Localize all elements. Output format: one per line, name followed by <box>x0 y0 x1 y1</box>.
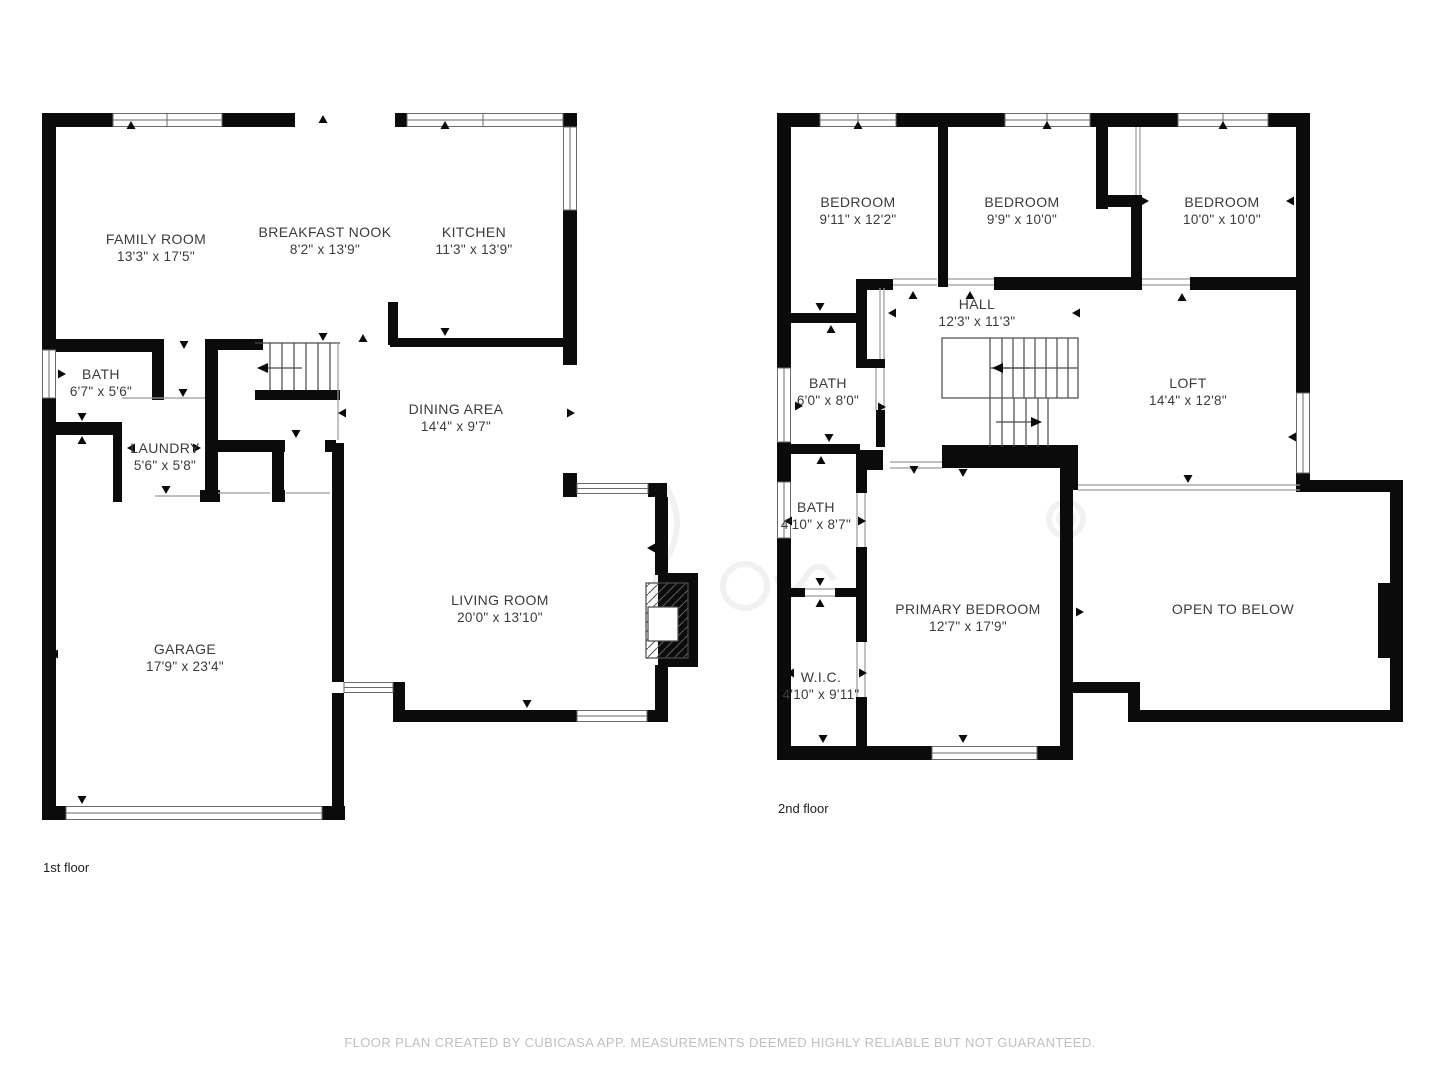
room-label-dining-area: DINING AREA <box>409 401 504 417</box>
floorplan-canvas: FAMILY ROOM 13'3" x 17'5" BREAKFAST NOOK… <box>0 0 1440 1080</box>
watermark <box>655 482 1083 620</box>
floor2-label: 2nd floor <box>778 801 829 816</box>
floorplan-page: FAMILY ROOM 13'3" x 17'5" BREAKFAST NOOK… <box>0 0 1440 1080</box>
room-dims-wic: 4'10" x 9'11" <box>783 687 860 702</box>
room-label-bedroom-1: BEDROOM <box>820 194 895 210</box>
floor2-stairs <box>942 338 1078 447</box>
room-label-bedroom-3: BEDROOM <box>1184 194 1259 210</box>
room-dims-breakfast-nook: 8'2" x 13'9" <box>290 242 360 257</box>
room-label-open-to-below: OPEN TO BELOW <box>1172 601 1295 617</box>
room-dims-dining-area: 14'4" x 9'7" <box>421 419 491 434</box>
room-dims-bedroom-3: 10'0" x 10'0" <box>1183 212 1261 227</box>
room-label-living-room: LIVING ROOM <box>451 592 549 608</box>
room-label-family-room: FAMILY ROOM <box>106 231 206 247</box>
footer-caption: FLOOR PLAN CREATED BY CUBICASA APP. MEAS… <box>344 1035 1095 1050</box>
room-label-hall: HALL <box>959 296 996 312</box>
room-label-bath1: BATH <box>82 366 120 382</box>
floor1-plan: FAMILY ROOM 13'3" x 17'5" BREAKFAST NOOK… <box>42 113 698 875</box>
room-dims-bedroom-1: 9'11" x 12'2" <box>820 212 897 227</box>
room-dims-family-room: 13'3" x 17'5" <box>117 249 195 264</box>
room-dims-living-room: 20'0" x 13'10" <box>457 610 543 625</box>
room-dims-garage: 17'9" x 23'4" <box>146 659 224 674</box>
room-dims-bath1: 6'7" x 5'6" <box>70 384 132 399</box>
room-dims-loft: 14'4" x 12'8" <box>1149 393 1227 408</box>
room-label-primary-bedroom: PRIMARY BEDROOM <box>895 601 1041 617</box>
room-label-bath-lower: BATH <box>797 499 835 515</box>
room-label-bedroom-2: BEDROOM <box>984 194 1059 210</box>
room-dims-bedroom-2: 9'9" x 10'0" <box>987 212 1057 227</box>
room-label-garage: GARAGE <box>154 641 216 657</box>
floor1-fireplace <box>646 583 688 658</box>
room-label-loft: LOFT <box>1169 375 1206 391</box>
room-dims-primary-bedroom: 12'7" x 17'9" <box>929 619 1007 634</box>
room-label-laundry: LAUNDRY <box>130 440 200 456</box>
room-dims-bath-upper: 6'0" x 8'0" <box>797 393 859 408</box>
room-label-bath-upper: BATH <box>809 375 847 391</box>
room-label-wic: W.I.C. <box>801 669 842 685</box>
room-label-breakfast-nook: BREAKFAST NOOK <box>259 224 392 240</box>
floor1-room-labels: FAMILY ROOM 13'3" x 17'5" BREAKFAST NOOK… <box>70 224 549 674</box>
room-dims-kitchen: 11'3" x 13'9" <box>436 242 513 257</box>
floor2-plan: BEDROOM 9'11" x 12'2" BEDROOM 9'9" x 10'… <box>777 113 1403 816</box>
floor1-label: 1st floor <box>43 860 90 875</box>
room-label-kitchen: KITCHEN <box>442 224 506 240</box>
room-dims-bath-lower: 4'10" x 8'7" <box>781 517 851 532</box>
room-dims-hall: 12'3" x 11'3" <box>939 314 1016 329</box>
room-dims-laundry: 5'6" x 5'8" <box>134 458 196 473</box>
